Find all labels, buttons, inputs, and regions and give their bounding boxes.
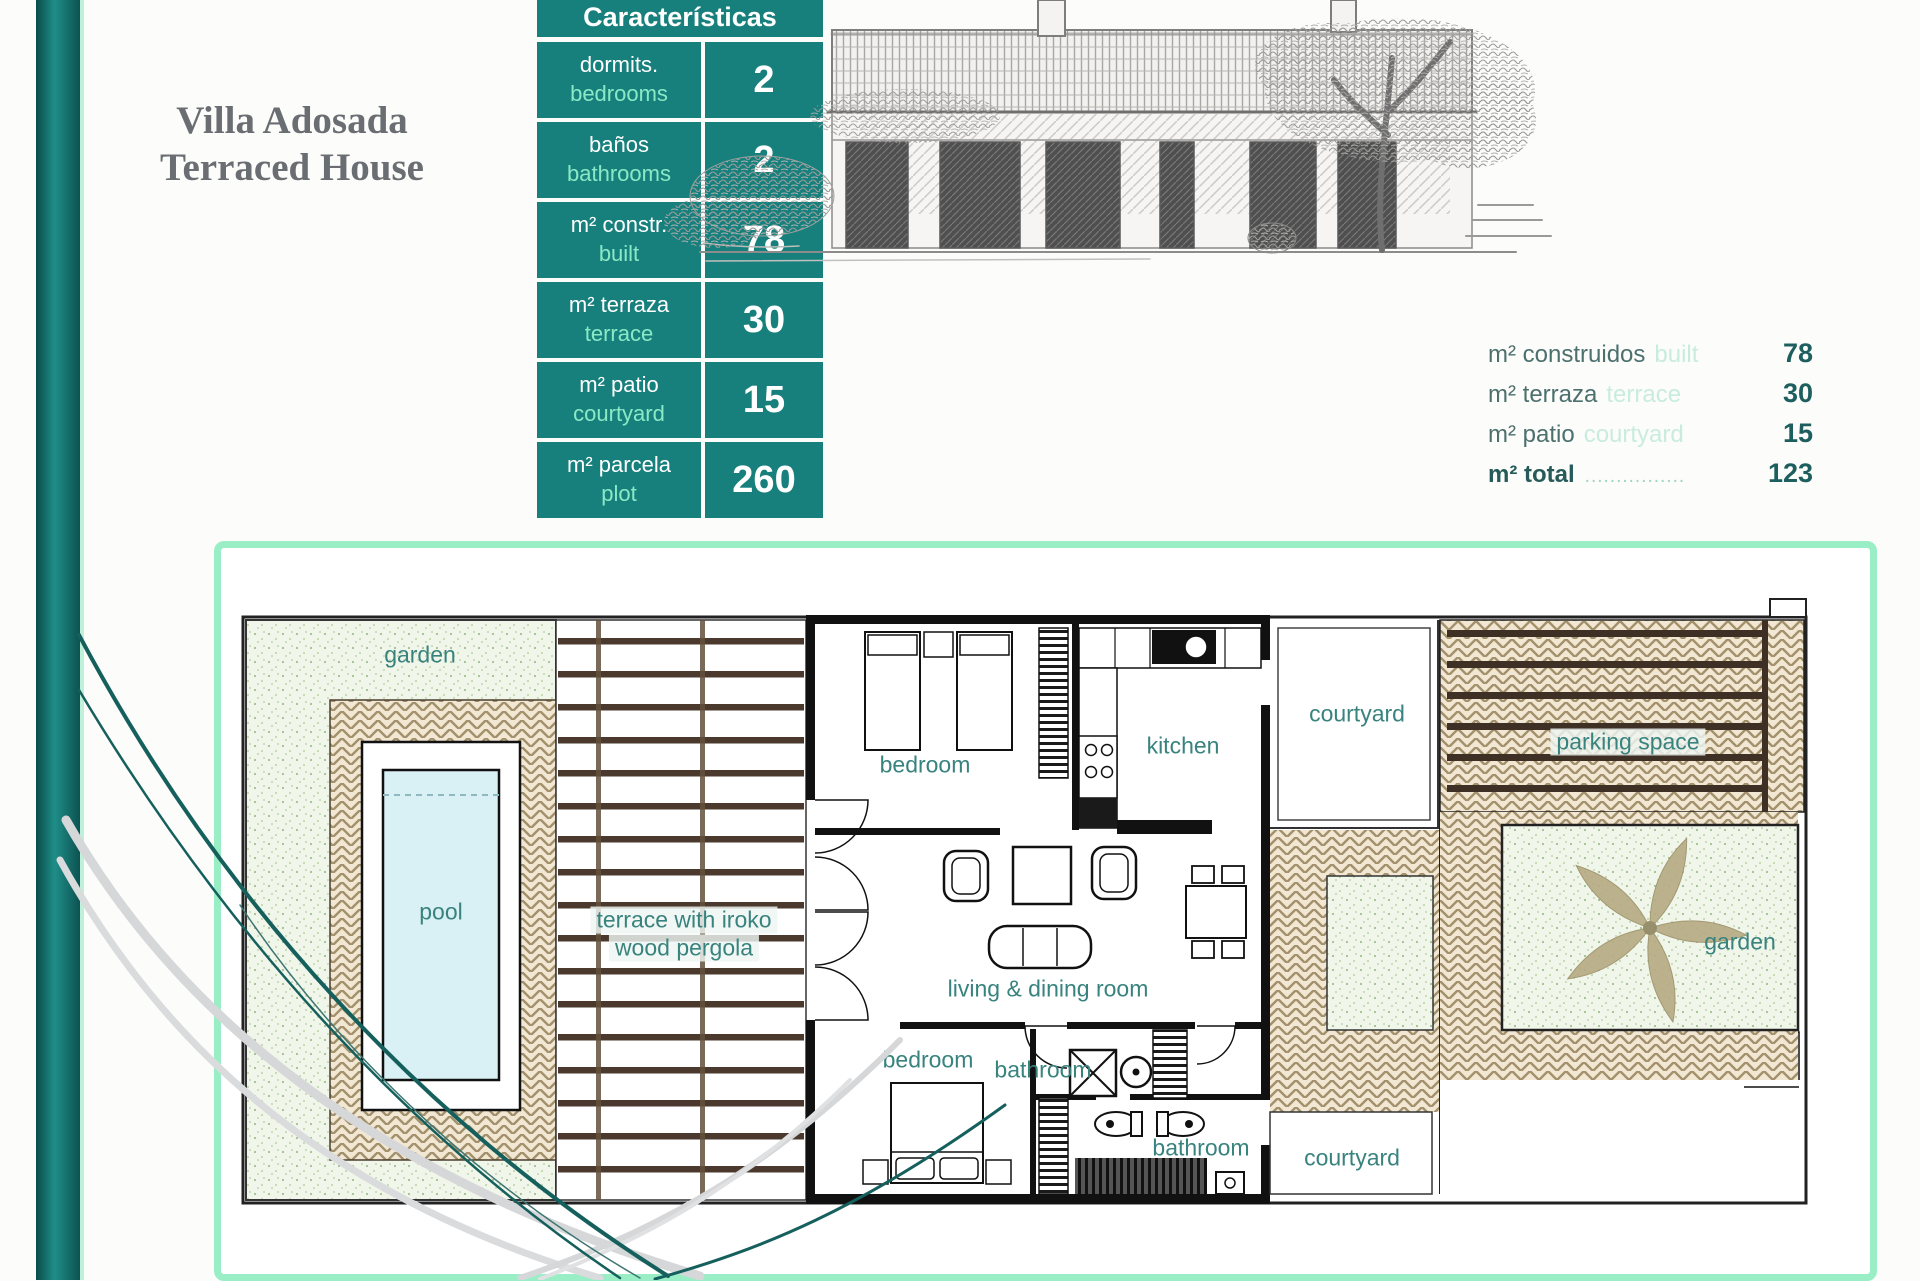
label-kitchen: kitchen [1147, 733, 1220, 760]
summary-row: m² construidos built 78 [1488, 338, 1813, 378]
row-label-en: bedrooms [570, 80, 668, 109]
summary-row-total: m² total ................ 123 [1488, 458, 1813, 498]
row-value: 78 [705, 202, 823, 278]
summary-value: 78 [1783, 338, 1813, 369]
label-parking: parking space [1550, 729, 1705, 756]
row-label-en: terrace [585, 320, 653, 349]
row-label-es: m² terraza [569, 291, 669, 320]
label-terrace-line1: terrace with iroko [590, 907, 777, 934]
summary-dots: ................ [1585, 466, 1685, 488]
label-bedroom-bottom: bedroom [883, 1047, 974, 1074]
label-bathroom-right: bathroom [1152, 1135, 1249, 1162]
label-courtyard-bottom: courtyard [1304, 1145, 1400, 1172]
row-label-en: built [599, 240, 639, 269]
row-value: 2 [705, 122, 823, 198]
summary-label-en: built [1654, 341, 1698, 369]
summary-label-en: terrace [1606, 381, 1681, 409]
label-garden-left: garden [384, 642, 456, 669]
summary-value: 123 [1768, 458, 1813, 489]
summary-label-es: m² total [1488, 461, 1575, 489]
row-value: 2 [705, 42, 823, 118]
row-label-es: m² constr. [571, 211, 668, 240]
row-label-es: m² patio [579, 371, 658, 400]
row-label-en: bathrooms [567, 160, 671, 189]
row-label-en: courtyard [573, 400, 665, 429]
page-title-es: Villa Adosada [112, 98, 472, 145]
label-bedroom-top: bedroom [880, 752, 971, 779]
row-label-es: baños [589, 131, 649, 160]
row-label-es: dormits. [580, 51, 658, 80]
summary-row: m² patio courtyard 15 [1488, 418, 1813, 458]
table-row: m² constr.built 78 [537, 202, 823, 278]
area-summary: m² construidos built 78 m² terraza terra… [1488, 338, 1813, 498]
accent-bar [36, 0, 84, 1280]
summary-value: 15 [1783, 418, 1813, 449]
row-label-es: m² parcela [567, 451, 671, 480]
row-value: 15 [705, 362, 823, 438]
summary-label-es: m² construidos [1488, 341, 1645, 369]
table-row: bañosbathrooms 2 [537, 122, 823, 198]
floor-plan-frame [214, 541, 1877, 1281]
label-terrace-line2: wood pergola [609, 935, 759, 962]
table-row: dormits.bedrooms 2 [537, 42, 823, 118]
summary-value: 30 [1783, 378, 1813, 409]
characteristics-header: Características [537, 0, 823, 37]
page-title: Villa Adosada Terraced House [112, 98, 472, 192]
table-row: m² parcelaplot 260 [537, 442, 823, 518]
label-living-dining: living & dining room [948, 976, 1149, 1003]
summary-row: m² terraza terrace 30 [1488, 378, 1813, 418]
summary-label-en: courtyard [1584, 421, 1684, 449]
summary-label-es: m² patio [1488, 421, 1575, 449]
row-label-en: plot [601, 480, 636, 509]
characteristics-table: Características dormits.bedrooms 2 baños… [537, 0, 823, 522]
label-courtyard-top: courtyard [1309, 701, 1405, 728]
row-value: 260 [705, 442, 823, 518]
table-row: m² patiocourtyard 15 [537, 362, 823, 438]
row-value: 30 [705, 282, 823, 358]
label-bathroom-center: bathroom [994, 1057, 1091, 1084]
page-title-en: Terraced House [112, 145, 472, 192]
label-pool: pool [419, 899, 462, 926]
label-garden-right: garden [1704, 929, 1776, 956]
table-row: m² terrazaterrace 30 [537, 282, 823, 358]
summary-label-es: m² terraza [1488, 381, 1597, 409]
